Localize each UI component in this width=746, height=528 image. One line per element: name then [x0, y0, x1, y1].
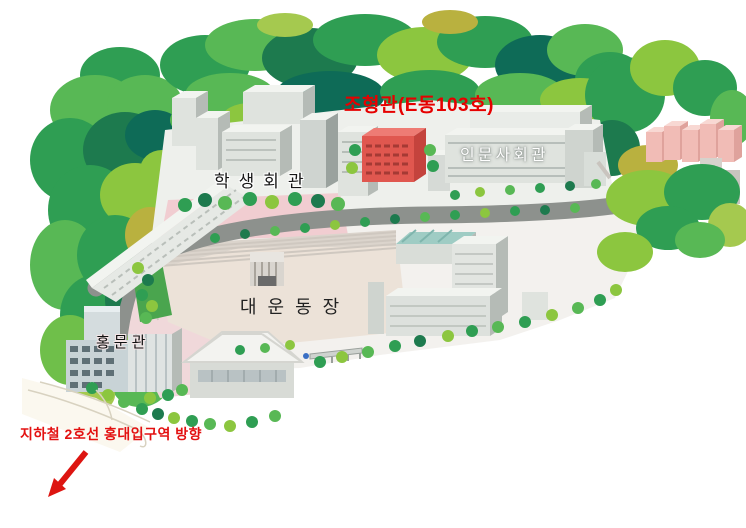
building-small-tower — [368, 282, 384, 334]
label-stadium: 대운동장 — [240, 298, 350, 316]
building-johyeong — [362, 128, 426, 182]
sign-icon — [303, 353, 309, 359]
building-low-long — [386, 288, 502, 336]
forest-right-lower — [597, 164, 746, 272]
campus-map-illustration — [0, 0, 746, 528]
label-hongmun-building: 홍문관 — [96, 335, 149, 350]
building-small-right — [522, 292, 548, 320]
stadium-gate — [250, 252, 284, 286]
subway-direction-arrow — [48, 452, 86, 497]
label-johyeong-building: 조형관(E동103호) — [344, 96, 494, 115]
label-inmun-building: 인문사회관 — [460, 148, 549, 164]
label-haksaeng-building: 학생회관 — [214, 173, 313, 190]
label-subway-direction: 지하철 2호선 홍대입구역 방향 — [20, 427, 202, 441]
campus-map: 조형관(E동103호) 인문사회관 학생회관 대운동장 홍문관 지하철 2호선 … — [0, 0, 746, 528]
